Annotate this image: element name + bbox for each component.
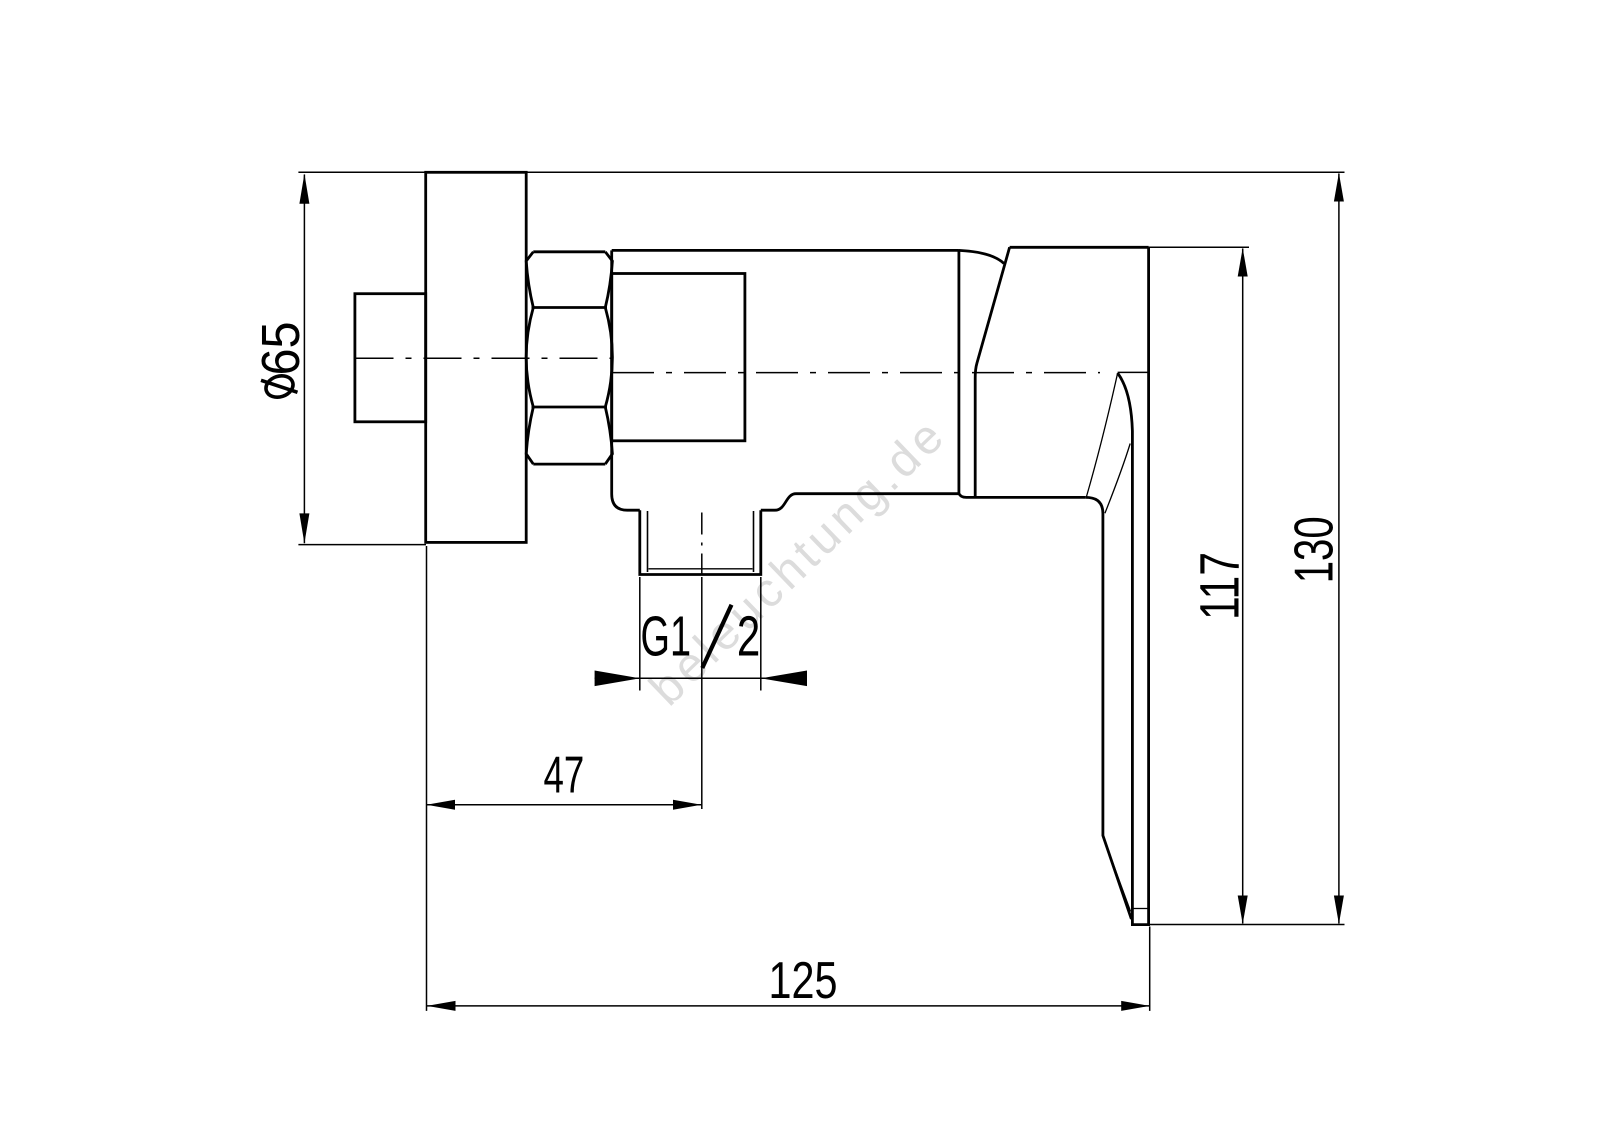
svg-text:65: 65: [252, 322, 311, 376]
svg-text:47: 47: [544, 746, 585, 804]
svg-text:G1: G1: [641, 605, 692, 669]
svg-text:117: 117: [1188, 552, 1251, 620]
svg-text:125: 125: [769, 951, 838, 1009]
svg-text:130: 130: [1284, 516, 1345, 583]
svg-text:2: 2: [737, 605, 760, 669]
